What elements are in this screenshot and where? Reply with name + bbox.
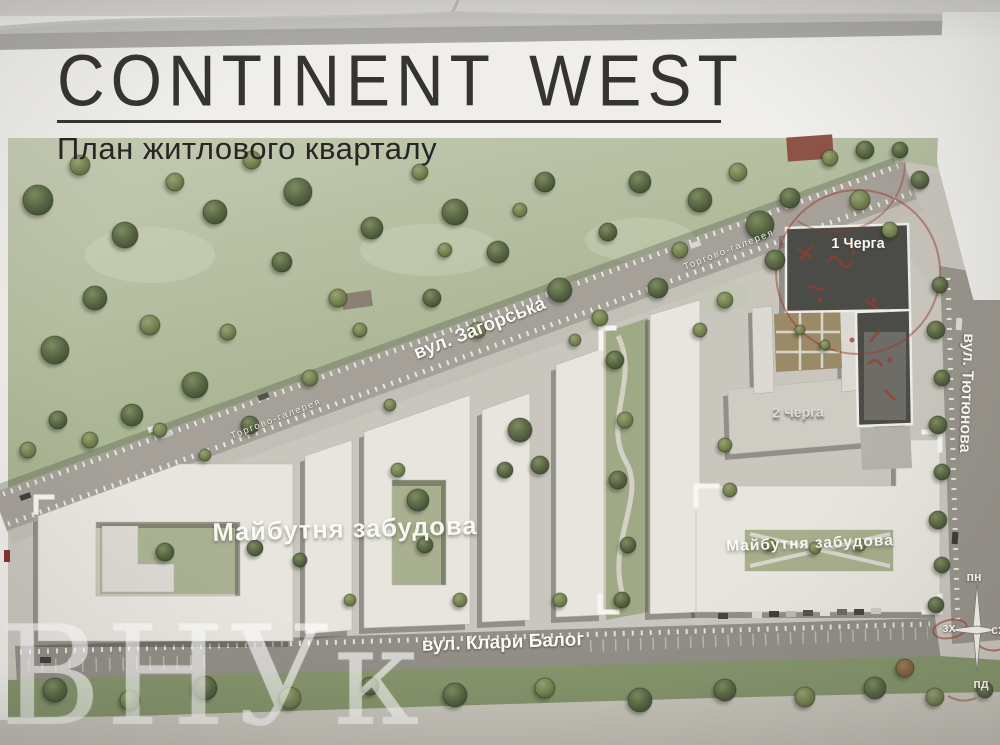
phase-2-label: 2 Черга — [772, 404, 824, 421]
brand-logo: CONTINENT WEST — [57, 44, 744, 117]
compass-south-label: пд — [973, 677, 989, 691]
phase-1-label: 1 Черга — [831, 236, 884, 252]
compass-east-label: сх — [991, 623, 1000, 637]
tree-autumn — [896, 659, 914, 677]
watermark-text: ВНУк — [0, 608, 424, 745]
compass-west-label: зх — [942, 621, 955, 635]
plan-header: CONTINENT WEST План житлового кварталу — [57, 44, 744, 167]
compass-north-label: пн — [966, 570, 981, 584]
page-subtitle: План житлового кварталу — [57, 131, 744, 167]
photo-of-site-plan: CONTINENT WEST План житлового кварталу в… — [0, 0, 1000, 745]
